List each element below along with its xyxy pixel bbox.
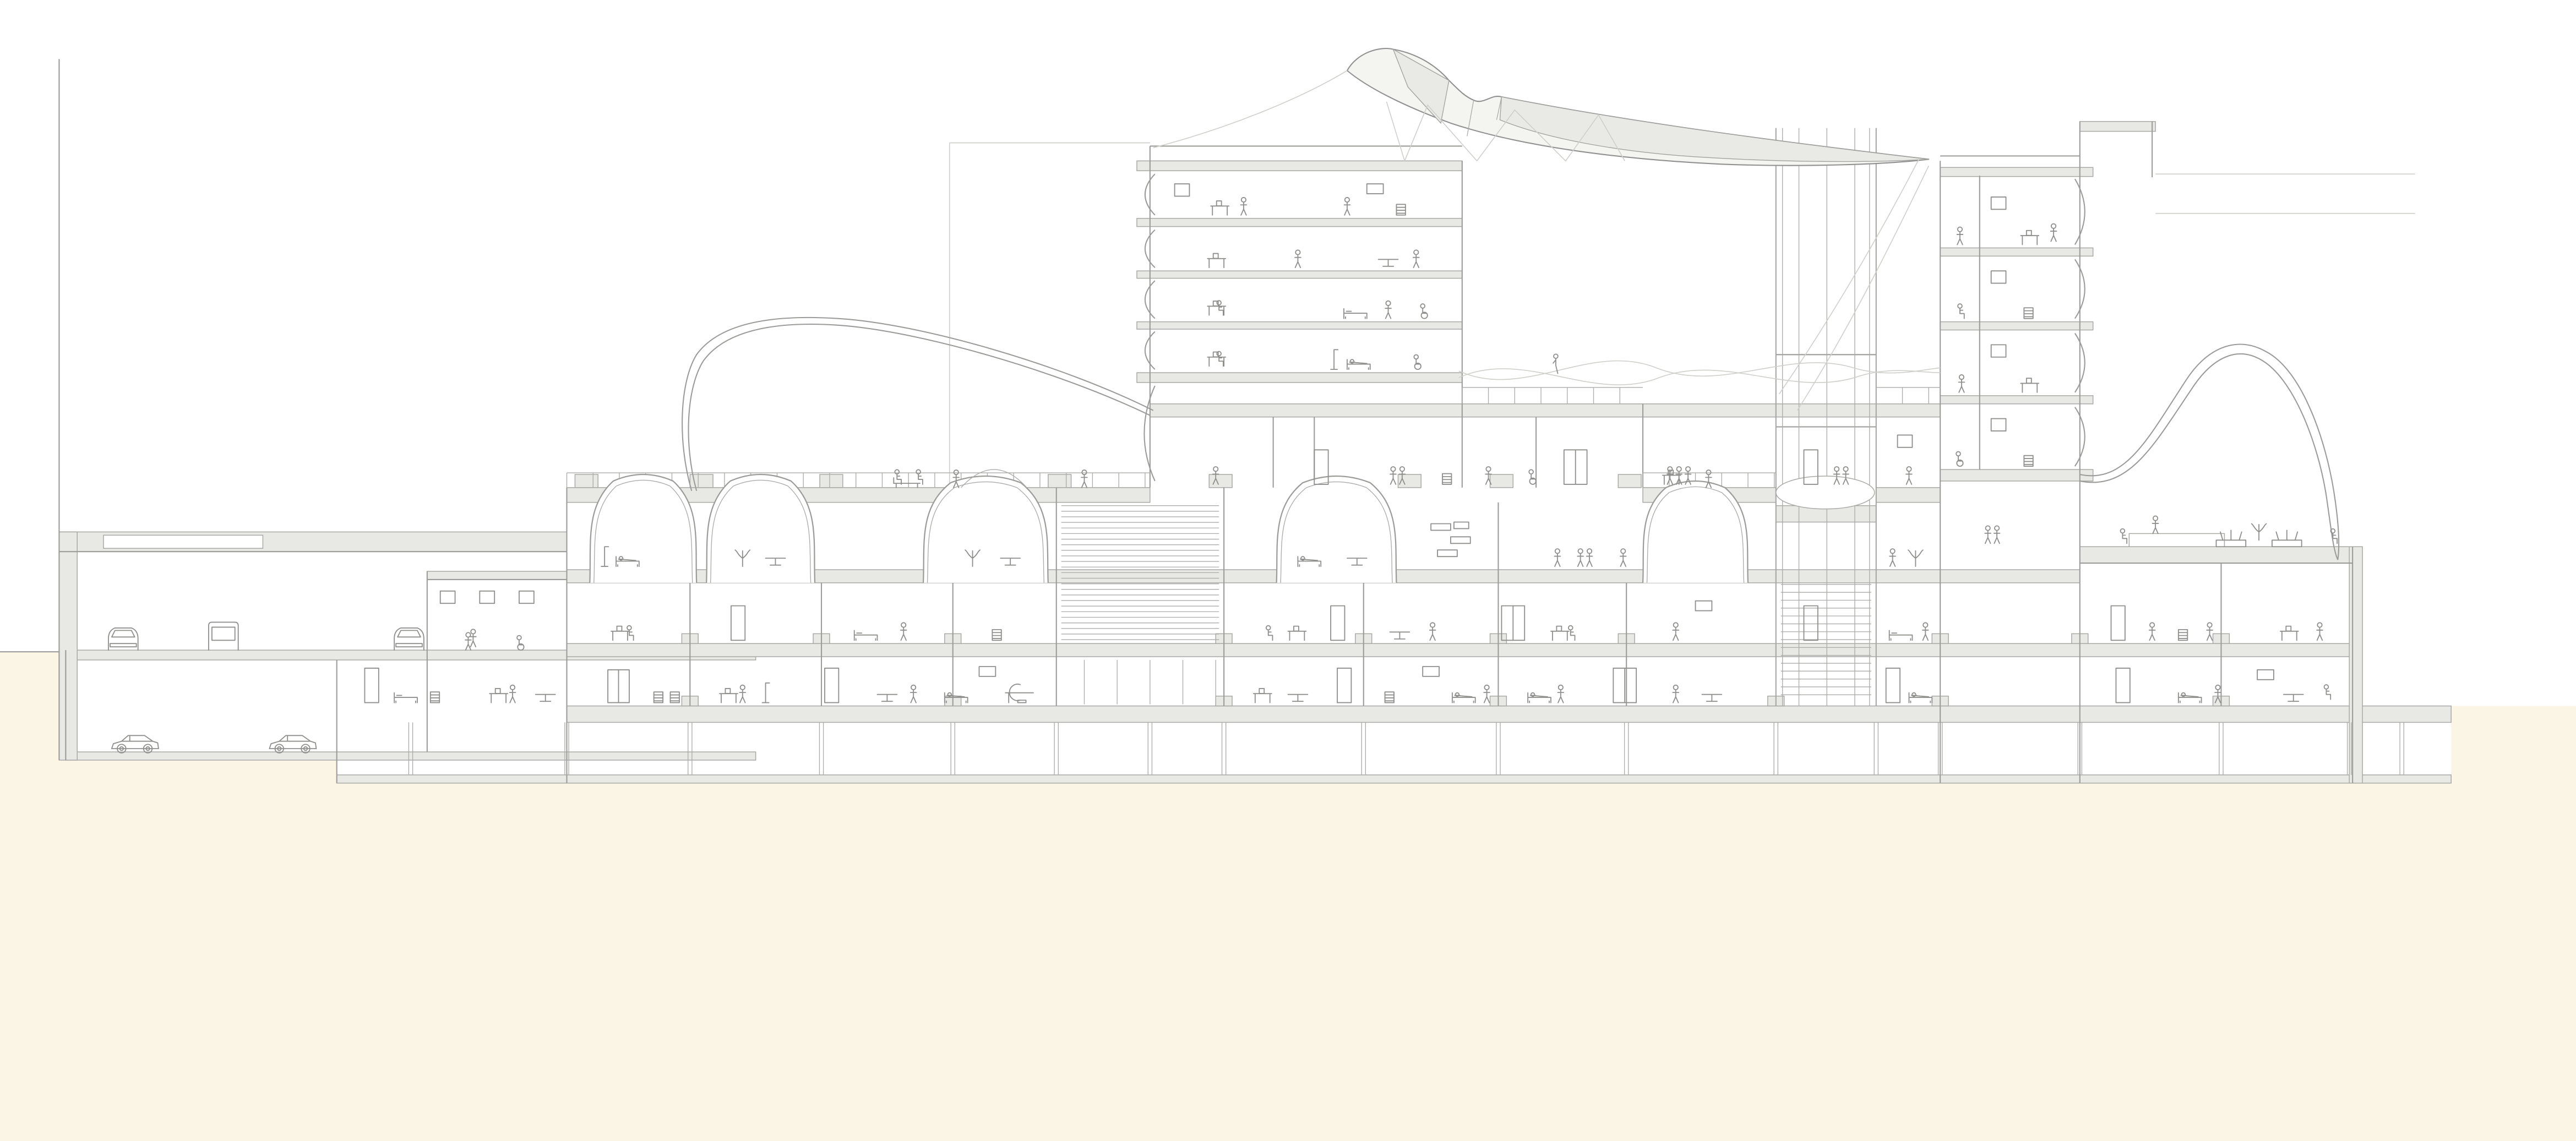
person-standing-body: [1889, 554, 1896, 566]
roof-inset: [104, 535, 263, 548]
wheelchair-user: [1420, 304, 1425, 308]
pedestal-table: [1390, 632, 1410, 639]
person-standing-body: [1385, 306, 1391, 319]
floor-slab: [1940, 322, 2093, 330]
architectural-section-canvas: [0, 0, 2576, 1141]
left-hill-canopy: [682, 318, 1153, 491]
door: [731, 606, 745, 641]
person-seated-body: [2326, 689, 2330, 699]
vehicles: [108, 622, 424, 752]
person-standing-body: [2153, 521, 2159, 534]
person-standing: [1578, 549, 1582, 553]
person-standing-body: [1587, 554, 1593, 566]
pier-cap: [820, 474, 843, 488]
desk-monitor: [1259, 689, 1264, 694]
person-standing: [1890, 549, 1894, 553]
person-standing-body: [1390, 472, 1396, 484]
floor-slab: [1876, 488, 1940, 503]
window: [1991, 345, 2006, 357]
canopy-swoosh: [1798, 166, 1929, 410]
person-standing: [1907, 467, 1911, 471]
stacked-chairs-lines: [1442, 477, 1451, 483]
person-standing: [510, 685, 515, 690]
person-standing-body: [1673, 628, 1679, 641]
organic-pod-rooms: [590, 474, 1748, 583]
person-standing-body: [1344, 203, 1350, 215]
floor-slab: [1940, 469, 2093, 481]
door: [825, 668, 838, 703]
person-standing: [2215, 685, 2220, 690]
left-hill-canopy: [689, 324, 1150, 491]
person-seated-body: [2122, 533, 2127, 543]
person-standing: [1677, 467, 1681, 471]
art-shelf: [1451, 537, 1471, 543]
window: [480, 591, 494, 603]
person-standing: [740, 685, 745, 690]
stacked-chairs-lines: [2024, 311, 2033, 317]
wheelchair-user: [517, 636, 521, 640]
pod-room: [923, 476, 1048, 583]
pedestal-table: [877, 695, 897, 702]
pedestal-table: [1379, 259, 1398, 266]
stacked-chairs-lines: [1396, 208, 1405, 214]
person-seated-body: [1219, 356, 1223, 366]
door: [2111, 606, 2125, 641]
stacked-chairs-lines: [992, 632, 1001, 638]
door: [1331, 606, 1344, 641]
person-standing: [1995, 526, 1999, 530]
plant: [1908, 550, 1923, 566]
floor-slab: [1150, 404, 1940, 417]
person-standing-body: [1241, 203, 1247, 215]
building-section-drawing: [0, 0, 2576, 1141]
bed: [1889, 630, 1913, 640]
floor-slab: [1940, 167, 2093, 176]
bed: [394, 693, 417, 703]
tv-screen: [979, 667, 995, 676]
desk-monitor: [617, 626, 622, 631]
window: [1175, 184, 1190, 196]
person-standing: [1414, 250, 1418, 254]
floor-slab: [66, 752, 755, 760]
floor-slab: [567, 706, 2451, 723]
desk: [2021, 383, 2039, 392]
door: [1804, 606, 1817, 641]
canopy-guy-line: [1153, 70, 1347, 148]
person-standing: [1345, 198, 1349, 202]
desk-monitor: [1294, 626, 1299, 631]
patient-body: [1459, 696, 1472, 697]
desk-monitor: [2027, 378, 2032, 383]
person-standing-body: [1667, 472, 1673, 484]
person-standing: [466, 632, 470, 637]
floor-slab: [59, 532, 77, 760]
person-standing: [1486, 467, 1490, 471]
pod-room: [1277, 476, 1397, 583]
patient-body: [1916, 696, 1929, 697]
person-standing: [1241, 198, 1246, 202]
person-seated-body: [1219, 305, 1223, 315]
person-standing: [471, 629, 475, 634]
person-seated-body: [1960, 308, 1964, 318]
person-seated-body: [918, 474, 923, 484]
art-shelf: [1431, 523, 1451, 530]
wheelchair-user: [1414, 355, 1418, 359]
planter-plants: [2276, 530, 2297, 540]
floor-slab: [1137, 271, 1462, 278]
person-standing: [1386, 301, 1390, 305]
tv-screen: [1367, 184, 1384, 194]
door: [2116, 668, 2130, 703]
person-seated: [2324, 685, 2329, 689]
pedestal-table: [2284, 695, 2303, 702]
person-standing: [2153, 516, 2158, 520]
person-seated: [1217, 301, 1221, 305]
person-seated-body: [629, 630, 634, 640]
desk: [611, 631, 629, 640]
tv-screen: [1423, 667, 1439, 676]
person-standing-body: [1413, 255, 1419, 268]
patient-body: [1354, 363, 1367, 364]
pedestal-table: [1702, 695, 1722, 702]
canopy-swoosh: [1779, 159, 1919, 394]
stacked-chairs-lines: [2179, 632, 2187, 638]
person-standing: [1587, 549, 1592, 553]
canopy-facet: [1500, 97, 1929, 162]
site-ground-fill: [0, 652, 2576, 1141]
person-sitting-on-net: [1554, 354, 1558, 358]
person-seated-body: [897, 474, 901, 484]
person-seated: [627, 626, 631, 630]
tv-screen: [1696, 601, 1712, 611]
person-seated: [1217, 352, 1221, 356]
person-standing: [1391, 467, 1395, 471]
pier-cap: [575, 474, 598, 488]
person-standing-body: [1555, 554, 1561, 566]
pod-room: [1643, 481, 1748, 583]
right-hill-canopy: [2080, 345, 2339, 560]
floor-slab: [2080, 547, 2352, 563]
desk-monitor: [2286, 626, 2291, 631]
person-seated: [895, 469, 899, 474]
door: [1886, 668, 1900, 703]
core-lens-pod: [1776, 476, 1875, 509]
floor-slab: [2080, 122, 2155, 132]
person-standing: [1706, 470, 1711, 474]
window: [1991, 271, 2006, 283]
person-standing-body: [2051, 229, 2057, 242]
person-standing: [1555, 549, 1560, 553]
person-standing: [1484, 685, 1489, 690]
person-standing-body: [901, 628, 907, 641]
desk: [1254, 694, 1272, 702]
pier-cap: [1618, 474, 1641, 488]
person-standing: [1400, 467, 1404, 471]
person-standing-body: [1994, 531, 2000, 544]
person-seated: [1266, 626, 1271, 630]
building-structure: [59, 59, 2451, 783]
person-standing: [1430, 623, 1435, 627]
floor-slab: [1137, 161, 1462, 171]
person-standing: [911, 685, 916, 690]
person-standing: [1559, 685, 1563, 690]
person-standing-body: [739, 690, 745, 703]
van-rear: [209, 622, 238, 650]
desk-monitor: [1556, 626, 1561, 631]
floor-slab: [1137, 322, 1462, 329]
person-standing: [2207, 623, 2212, 627]
person-standing: [2150, 623, 2154, 627]
person-seated-body: [1571, 630, 1575, 640]
patient-body: [2186, 696, 2198, 697]
person-standing-body: [1620, 554, 1626, 566]
iv-pole: [1331, 350, 1338, 369]
person-standing: [1986, 526, 1990, 530]
pier-cap: [1490, 474, 1513, 488]
right-hill-canopy: [2080, 354, 2338, 560]
person-standing-body: [1673, 690, 1679, 703]
person-standing-body: [1484, 690, 1490, 703]
door: [364, 668, 378, 703]
iv-pole: [763, 683, 770, 703]
person-standing: [1958, 227, 1962, 232]
window: [1991, 419, 2006, 431]
furniture-and-equipment: [364, 184, 2303, 703]
person-standing-body: [465, 637, 471, 650]
person-standing: [2317, 623, 2322, 627]
van-rear-panel: [212, 627, 235, 640]
pedestal-table: [536, 695, 555, 702]
pod-room: [706, 474, 815, 583]
person-seated: [1569, 626, 1573, 630]
person-standing: [1621, 549, 1625, 553]
desk: [2021, 236, 2039, 244]
floor-slab: [337, 775, 2451, 783]
person-seated: [2121, 529, 2125, 533]
door: [1337, 668, 1351, 703]
pier-cap: [1209, 474, 1232, 488]
person-standing-body: [2149, 628, 2155, 641]
person-standing: [1686, 467, 1690, 471]
person-standing: [1959, 375, 1964, 379]
car-front-detail: [110, 630, 137, 647]
person-seated: [916, 469, 921, 474]
desk-monitor: [1217, 201, 1222, 206]
person-standing-body: [1923, 628, 1929, 641]
desk-monitor: [1213, 254, 1218, 259]
person-standing-body: [1906, 472, 1912, 484]
backdrop-reference-lines: [950, 143, 2415, 487]
person-standing: [1674, 685, 1678, 690]
person-standing-body: [1959, 380, 1965, 392]
c-arm-base: [1018, 700, 1026, 702]
person-standing-body: [1557, 690, 1564, 703]
person-standing: [954, 470, 958, 474]
person-standing: [1843, 467, 1848, 471]
person-standing-body: [1081, 475, 1087, 488]
person-standing: [1082, 470, 1086, 474]
stacked-chairs-lines: [2024, 458, 2033, 465]
art-shelf: [1454, 522, 1469, 529]
window: [519, 591, 534, 603]
window: [1898, 435, 1913, 447]
person-standing: [2051, 224, 2056, 228]
floor-slab: [567, 643, 2352, 657]
wheelchair-user: [1956, 452, 1960, 456]
person-standing-body: [911, 690, 917, 703]
person-standing-body: [470, 635, 476, 647]
bed: [1344, 309, 1367, 319]
stacked-chairs-lines: [654, 695, 663, 701]
stacked-chairs-lines: [670, 695, 679, 701]
plant: [2252, 523, 2267, 540]
wheelchair-user: [1529, 469, 1533, 474]
person-standing: [1834, 467, 1839, 471]
floor-slab: [1137, 373, 1462, 383]
desk-monitor: [725, 689, 730, 694]
planter-box: [2272, 540, 2302, 547]
patient-body: [1535, 696, 1548, 697]
desk: [489, 694, 508, 702]
ground-terrain: [0, 652, 2576, 1141]
desk: [1551, 631, 1569, 640]
pier-cap: [1048, 474, 1071, 488]
floor-slab: [1940, 248, 2093, 256]
desk: [1288, 631, 1306, 640]
person-standing: [1674, 623, 1678, 627]
person-standing-body: [1430, 628, 1436, 641]
desk: [1211, 206, 1229, 215]
person-standing-body: [1577, 554, 1583, 566]
person-standing-body: [1957, 232, 1963, 245]
roof-inset: [2129, 533, 2224, 547]
pedestal-table: [1288, 695, 1308, 702]
desk-monitor: [495, 689, 500, 694]
desk: [720, 694, 738, 702]
person-seated: [1958, 304, 1962, 308]
art-shelf: [1437, 550, 1457, 556]
floor-slab: [1940, 396, 2093, 404]
floor-slab: [427, 571, 567, 580]
window: [440, 591, 455, 603]
desk: [2280, 631, 2299, 640]
bed: [854, 630, 878, 640]
floor-slab: [1137, 219, 1462, 227]
desk: [1207, 259, 1226, 267]
stacked-chairs-lines: [1385, 695, 1394, 701]
person-standing-body: [1295, 255, 1301, 268]
window: [1991, 197, 2006, 209]
person-seated-body: [1268, 630, 1273, 640]
stacked-chairs-lines: [431, 695, 439, 701]
desk-monitor: [2027, 231, 2032, 236]
person-standing: [1923, 623, 1927, 627]
person-standing-body: [2317, 628, 2323, 641]
person-standing-body: [2207, 628, 2213, 641]
person-standing: [1295, 250, 1300, 254]
person-standing-body: [510, 690, 516, 703]
person-standing: [1213, 467, 1218, 471]
person-standing-body: [1985, 531, 1991, 544]
person-standing: [901, 623, 906, 627]
tv-screen: [2257, 670, 2274, 680]
car-front-detail: [396, 630, 422, 647]
